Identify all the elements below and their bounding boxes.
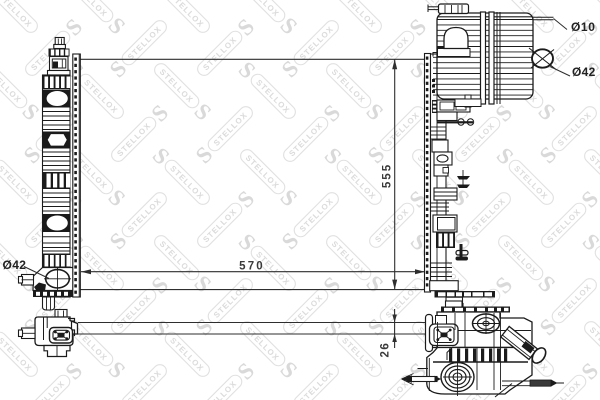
svg-text:Ø42: Ø42 xyxy=(572,65,596,79)
svg-text:Ø42: Ø42 xyxy=(3,258,27,272)
svg-text:570: 570 xyxy=(239,260,265,272)
svg-text:26: 26 xyxy=(380,342,392,358)
svg-text:Ø10: Ø10 xyxy=(571,20,595,34)
svg-text:555: 555 xyxy=(382,163,394,188)
